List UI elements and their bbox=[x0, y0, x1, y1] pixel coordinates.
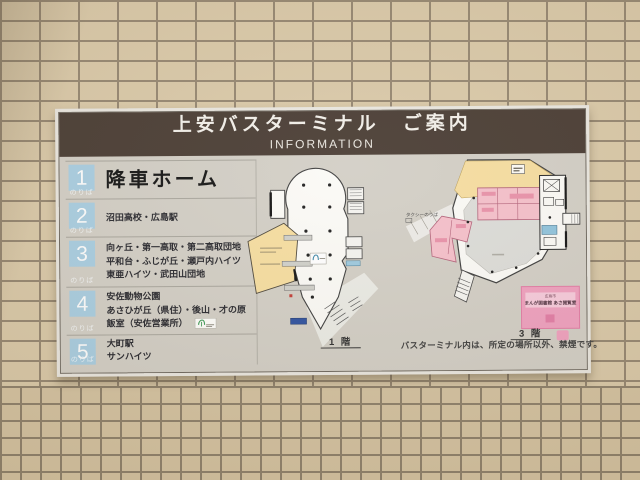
platform-word: のりば bbox=[70, 226, 94, 236]
plaza-tiny-label bbox=[492, 254, 504, 256]
platform-row-4: 4 のりば 安佐動物公園 あさひが丘（県住）・後山・才の原 飯室（安佐営業所） bbox=[66, 286, 256, 335]
destination-line: あさひが丘（県住）・後山・才の原 bbox=[106, 303, 256, 318]
floor1-label: 1 階 bbox=[329, 336, 353, 348]
platform-number-tile: 3 bbox=[69, 241, 95, 267]
destination-line: 安佐動物公園 bbox=[106, 290, 256, 305]
stairs-protrusion bbox=[454, 270, 474, 302]
platform-word: のりば bbox=[70, 188, 94, 198]
platform-word: のりば bbox=[70, 276, 94, 286]
destination-line: 飯室（安佐営業所） bbox=[107, 318, 188, 329]
tiled-wall-lower bbox=[0, 386, 640, 480]
blue-mat bbox=[291, 318, 307, 324]
annex-room bbox=[271, 190, 285, 218]
waiting-room-yellow bbox=[248, 223, 298, 293]
destination-line: 降車ホーム bbox=[105, 168, 255, 191]
destination-line: 大町駅 bbox=[107, 336, 257, 351]
destination-line-with-badge: 飯室（安佐営業所） bbox=[107, 317, 257, 332]
exit-mark bbox=[289, 294, 292, 297]
destination-line: 向ヶ丘・第一高取・第二高取団地 bbox=[106, 241, 256, 256]
platform-word: のりば bbox=[71, 355, 95, 365]
annex-right bbox=[540, 175, 567, 249]
destination-line: 沼田高校・広島駅 bbox=[106, 210, 256, 225]
destination-line: 東亜ハイツ・武田山団地 bbox=[106, 268, 256, 283]
platform-row-2: 2 のりば 沼田高校・広島駅 bbox=[66, 198, 256, 237]
photo-scene: 上安バスターミナル ご案内 INFORMATION 1 のりば 降車ホーム 2 … bbox=[0, 0, 640, 480]
yellow-area-label-box bbox=[511, 165, 524, 174]
platform-number: 1 bbox=[76, 167, 88, 188]
floor-plan-1f: 1 階 bbox=[245, 156, 404, 363]
water-feature bbox=[346, 261, 360, 266]
right-stub-entry bbox=[563, 213, 580, 224]
sign-title: 上安バスターミナル ご案内 bbox=[173, 114, 472, 137]
platform-list: 1 のりば 降車ホーム 2 のりば 沼田高校・広島駅 3 のりば bbox=[65, 159, 257, 365]
destination-line: サンハイツ bbox=[107, 349, 257, 364]
platform-number: 3 bbox=[76, 243, 88, 264]
asa-zoo-logo-badge bbox=[194, 318, 216, 329]
zoo-logo-badge-plan bbox=[310, 253, 326, 264]
platform-number-tile: 4 bbox=[69, 291, 95, 317]
sign-subtitle: INFORMATION bbox=[270, 137, 375, 152]
information-sign-board: 上安バスターミナル ご案内 INFORMATION 1 のりば 降車ホーム 2 … bbox=[55, 105, 591, 377]
manga-library-city: 広島市 bbox=[545, 293, 557, 298]
smoking-note: バスターミナル内は、所定の場所以外、禁煙です。 bbox=[401, 338, 583, 351]
floor-plan-3f: タクシーのりば bbox=[403, 149, 582, 342]
platform-number: 4 bbox=[77, 293, 89, 314]
platform-number: 2 bbox=[76, 205, 88, 226]
platform-row-1: 1 のりば 降車ホーム bbox=[65, 160, 255, 199]
pink-rooms-center bbox=[478, 187, 540, 219]
platform-row-3: 3 のりば 向ヶ丘・第一高取・第二高取団地 平和台・ふじが丘・瀬戸内ハイツ 東亜… bbox=[66, 236, 256, 287]
platform-word: のりば bbox=[71, 324, 95, 334]
destination-line: 平和台・ふじが丘・瀬戸内ハイツ bbox=[106, 254, 256, 269]
platform-row-5: 5 のりば 大町駅 サンハイツ bbox=[67, 334, 257, 365]
